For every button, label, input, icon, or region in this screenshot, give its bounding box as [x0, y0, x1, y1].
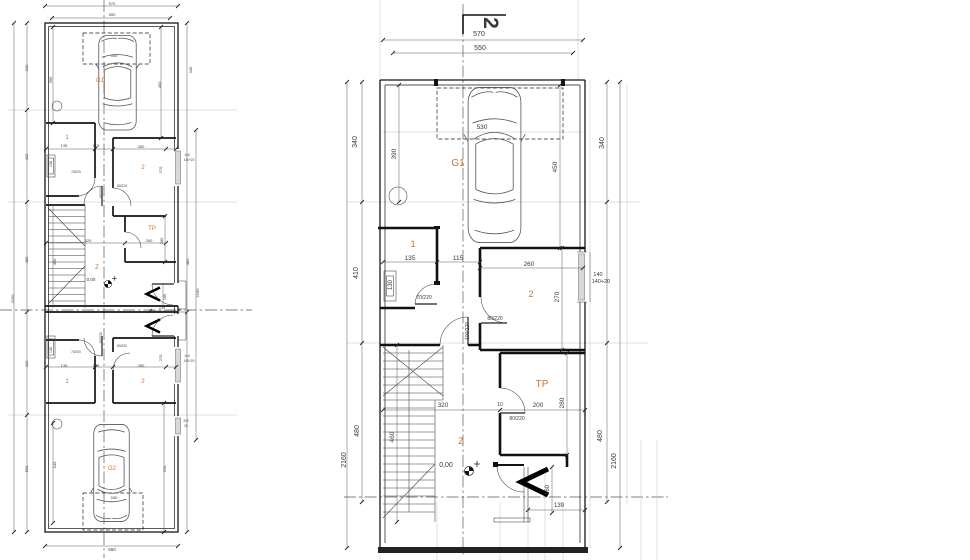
dim-570: 570 — [109, 1, 116, 6]
dim-550-top: 550 — [109, 12, 116, 17]
construction-lines — [8, 110, 237, 415]
dim-260: 260 — [524, 261, 535, 268]
door-80-220: 80/220 — [487, 316, 503, 322]
dim-139: 139 — [554, 503, 565, 509]
door-70-220: 70/220 — [416, 295, 432, 301]
room-1b: 1 — [65, 379, 69, 385]
dim-570: 570 — [473, 31, 485, 38]
dim-410-left: 410 — [24, 153, 29, 160]
garage-jamb — [561, 79, 565, 86]
dim-390: 390 — [391, 148, 398, 159]
dim-530: 530 — [477, 124, 488, 131]
room-tp: TP — [536, 379, 549, 390]
door-80-220-a: 80/220 — [117, 184, 127, 188]
dim-160: 160 — [545, 484, 551, 495]
door-80-220-b: 80/220 — [117, 344, 127, 348]
dim-200: 200 — [533, 402, 544, 409]
dim-135-b: 135 — [61, 363, 68, 368]
dim-320-a: 320 — [85, 238, 92, 243]
dim-130: 130 — [388, 279, 394, 290]
left-plan: 570550530G134039045034011351152602270130… — [0, 0, 252, 558]
dim-340-right: 340 — [599, 137, 606, 149]
dim-2160-left: 2160 — [10, 294, 15, 304]
room-z: Z — [458, 436, 464, 446]
window-icon — [176, 151, 181, 184]
dim-260-b: 260 — [138, 363, 145, 368]
door-80-220-tp: 80/220 — [509, 416, 525, 422]
dim-550-right-b: 550 — [162, 465, 167, 472]
dim-540-b: 540 — [52, 461, 57, 468]
dim-340-left: 340 — [24, 64, 29, 71]
window-icon — [579, 254, 585, 300]
dim-2160-right: 2160 — [195, 288, 200, 298]
room-garage-b: G2 — [108, 466, 117, 472]
door-100-220-b: 100/220 — [99, 332, 103, 344]
door-70-220-a: 70/220 — [71, 170, 81, 174]
outer-wall — [45, 23, 178, 532]
dim-480-right: 480 — [185, 258, 190, 265]
dim-450: 450 — [157, 81, 162, 88]
dim-390: 390 — [48, 76, 53, 83]
dim-410-left-b: 410 — [24, 360, 29, 367]
win-20-b: 20 — [184, 424, 188, 428]
room-1: 1 — [410, 239, 415, 249]
dim-270: 270 — [554, 291, 561, 302]
do ors — [415, 284, 530, 522]
dim-550-left-b: 550 — [24, 465, 29, 472]
outer-wall-inner — [385, 85, 580, 543]
win-140-a: 140 — [184, 153, 190, 157]
level-point-icon — [104, 276, 116, 288]
dim-550: 550 — [474, 45, 486, 52]
dim-260-a: 260 — [138, 144, 145, 149]
level-marker: 0,00 — [439, 462, 453, 469]
dim-135: 135 — [405, 255, 416, 262]
level-point-icon — [465, 461, 481, 476]
dim-10: 10 — [497, 402, 503, 408]
dim-530-a: 530 — [111, 53, 118, 58]
dim-320: 320 — [438, 402, 449, 409]
dim-130-a: 130 — [49, 161, 53, 167]
door-70-220-b: 70/220 — [71, 350, 81, 354]
level-marker-a: 0,00 — [87, 277, 96, 282]
dim-115: 115 — [453, 255, 464, 262]
dim-340-right: 340 — [188, 66, 193, 73]
room-garage-a: G1 — [96, 78, 105, 84]
car-icon — [464, 87, 526, 242]
entrance-arrow-b-icon — [147, 320, 161, 333]
dim-160-a: 160 — [163, 294, 167, 300]
dim-280-a: 280 — [159, 237, 164, 244]
dim-410-left: 410 — [353, 267, 360, 279]
dim-270-a: 270 — [158, 166, 163, 173]
room-1a: 1 — [65, 135, 69, 141]
dim-115-a: 115 — [93, 143, 100, 148]
dimension-lines — [14, 6, 196, 546]
room-garage: G1 — [451, 158, 465, 169]
room-tp-a: TP — [148, 226, 156, 232]
garage-door-zone — [437, 88, 563, 139]
dim-280: 280 — [559, 397, 566, 408]
dim-135-a: 135 — [61, 143, 68, 148]
right-plan: 2570550530G13403904503401135115260227013… — [341, 0, 668, 560]
party-wall-cut — [378, 547, 588, 553]
room-2b: 2 — [141, 379, 145, 385]
dim-139-a: 139 — [159, 306, 165, 310]
win-140: 140 — [593, 272, 602, 278]
left-plan-labels: 570550530G134039045034011351152602270130… — [10, 1, 200, 552]
wall-cap — [434, 226, 440, 229]
dim-530-b: 530 — [111, 495, 118, 500]
room-z-a: Z — [95, 265, 99, 271]
window-icon — [176, 418, 181, 434]
stairs — [48, 205, 85, 308]
dimension-ticks — [12, 4, 198, 548]
dim-460: 460 — [389, 431, 396, 442]
garage-door-zone-a — [83, 33, 150, 64]
win-140-20-a: 140+20 — [184, 158, 195, 162]
room-2: 2 — [528, 289, 533, 299]
dim-200-a: 200 — [146, 238, 153, 243]
outer-wall — [380, 80, 585, 548]
dim-115-b: 115 — [93, 363, 100, 368]
dim-480-left: 480 — [24, 256, 29, 263]
win-140-b: 140 — [184, 354, 190, 358]
door-100-220: 100/220 — [465, 322, 471, 340]
room-2a: 2 — [141, 165, 145, 171]
dim-450: 450 — [552, 161, 559, 172]
wall-cap — [434, 281, 440, 285]
dim-480-left: 480 — [354, 425, 361, 437]
win-200-b: 200 — [183, 419, 189, 423]
win-140-20-b: 140+20 — [184, 359, 195, 363]
door-100-220-a: 100/220 — [99, 187, 103, 199]
floor-plan-canvas: 570550530G134039045034011351152602270130… — [0, 0, 970, 560]
outer-wall-inner — [49, 27, 175, 529]
section-marker-2: 2 — [479, 17, 502, 29]
dim-2160-left: 2160 — [341, 452, 348, 468]
dim-550-bottom: 550 — [108, 547, 116, 552]
dim-270-b: 270 — [158, 354, 163, 361]
doors — [77, 178, 174, 370]
dim-340-left: 340 — [352, 136, 359, 148]
entrance-arrow-a-icon — [147, 288, 161, 301]
entrance-arrow-icon — [521, 469, 548, 495]
dim-480-right: 480 — [597, 430, 604, 442]
win-140-20: 140+20 — [592, 279, 611, 285]
dim-460-a: 460 — [52, 258, 57, 265]
car-b-icon — [91, 424, 132, 521]
dim-2160-right: 2160 — [611, 453, 618, 469]
dim-130-b: 130 — [49, 347, 53, 353]
garage-jamb — [434, 79, 438, 86]
